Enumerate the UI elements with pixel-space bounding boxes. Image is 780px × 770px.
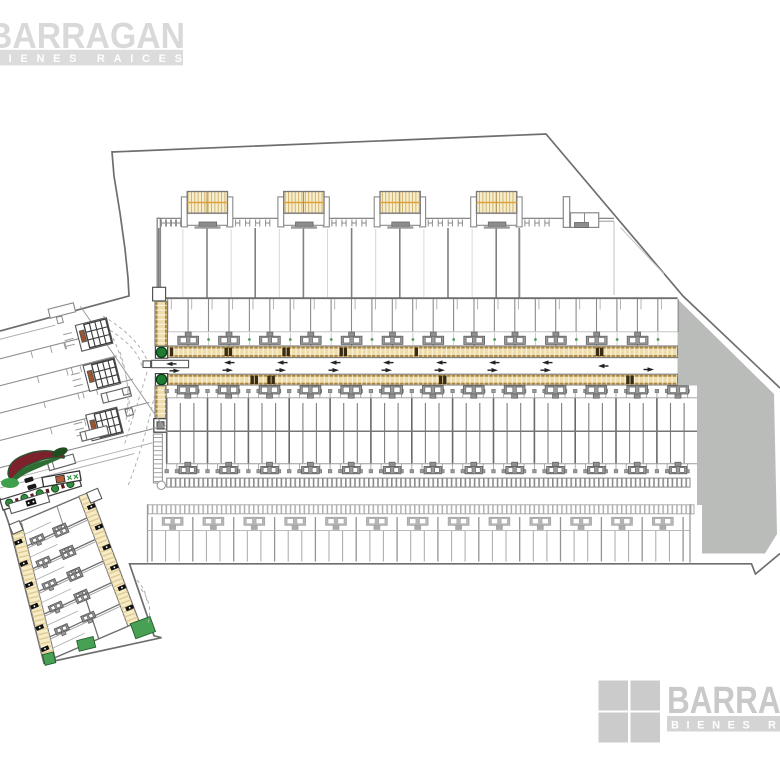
svg-text:BARRAG: BARRAG bbox=[667, 680, 780, 722]
